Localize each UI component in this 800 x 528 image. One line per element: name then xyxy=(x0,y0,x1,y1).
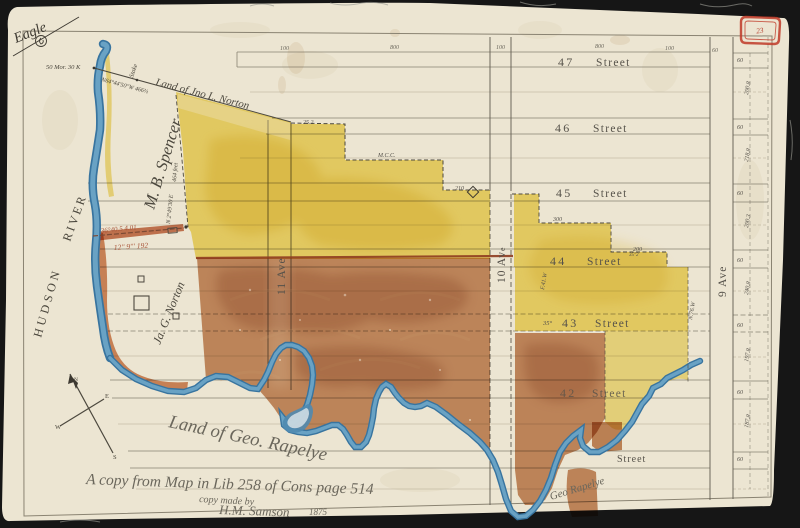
svg-text:Street: Street xyxy=(595,318,630,330)
svg-text:Street: Street xyxy=(593,123,628,135)
svg-text:60: 60 xyxy=(737,58,743,64)
svg-text:1875: 1875 xyxy=(309,507,328,517)
svg-text:43: 43 xyxy=(562,316,578,330)
svg-text:E: E xyxy=(105,393,109,400)
svg-text:Street: Street xyxy=(596,57,631,69)
svg-text:45: 45 xyxy=(556,186,572,200)
svg-text:42: 42 xyxy=(560,386,576,400)
svg-text:800: 800 xyxy=(390,45,399,51)
svg-text:300: 300 xyxy=(552,217,562,223)
svg-text:S: S xyxy=(113,454,117,461)
svg-text:H.M. Samson: H.M. Samson xyxy=(218,502,290,519)
svg-text:25.2: 25.2 xyxy=(303,120,314,126)
svg-text:60: 60 xyxy=(737,457,743,463)
svg-text:60: 60 xyxy=(737,125,743,131)
svg-text:44: 44 xyxy=(550,254,566,268)
svg-text:11 Ave: 11 Ave xyxy=(276,257,288,295)
svg-text:23: 23 xyxy=(755,26,764,36)
svg-text:60: 60 xyxy=(737,258,743,264)
svg-text:W: W xyxy=(55,424,62,431)
svg-text:Street: Street xyxy=(593,188,628,200)
svg-text:47: 47 xyxy=(558,55,574,69)
svg-text:210: 210 xyxy=(455,186,464,192)
svg-text:60: 60 xyxy=(737,390,743,396)
svg-text:100: 100 xyxy=(280,46,289,52)
svg-text:800: 800 xyxy=(595,44,604,50)
svg-text:M.C.C.: M.C.C. xyxy=(377,153,396,159)
svg-text:60: 60 xyxy=(712,48,718,54)
svg-text:10 Ave: 10 Ave xyxy=(496,246,508,283)
svg-text:Street: Street xyxy=(587,256,622,268)
svg-text:100: 100 xyxy=(496,45,505,51)
svg-text:60: 60 xyxy=(737,323,743,329)
svg-text:50 Mor. 30 K: 50 Mor. 30 K xyxy=(46,64,81,71)
svg-text:9 Ave: 9 Ave xyxy=(717,266,729,297)
svg-text:100: 100 xyxy=(665,46,674,52)
svg-text:35°2: 35°2 xyxy=(629,253,639,258)
svg-text:60: 60 xyxy=(737,191,743,197)
svg-text:Street: Street xyxy=(592,388,627,400)
svg-text:35°: 35° xyxy=(542,320,553,327)
svg-text:46: 46 xyxy=(555,121,571,135)
svg-text:N: N xyxy=(74,377,78,383)
svg-text:Street: Street xyxy=(617,454,646,465)
